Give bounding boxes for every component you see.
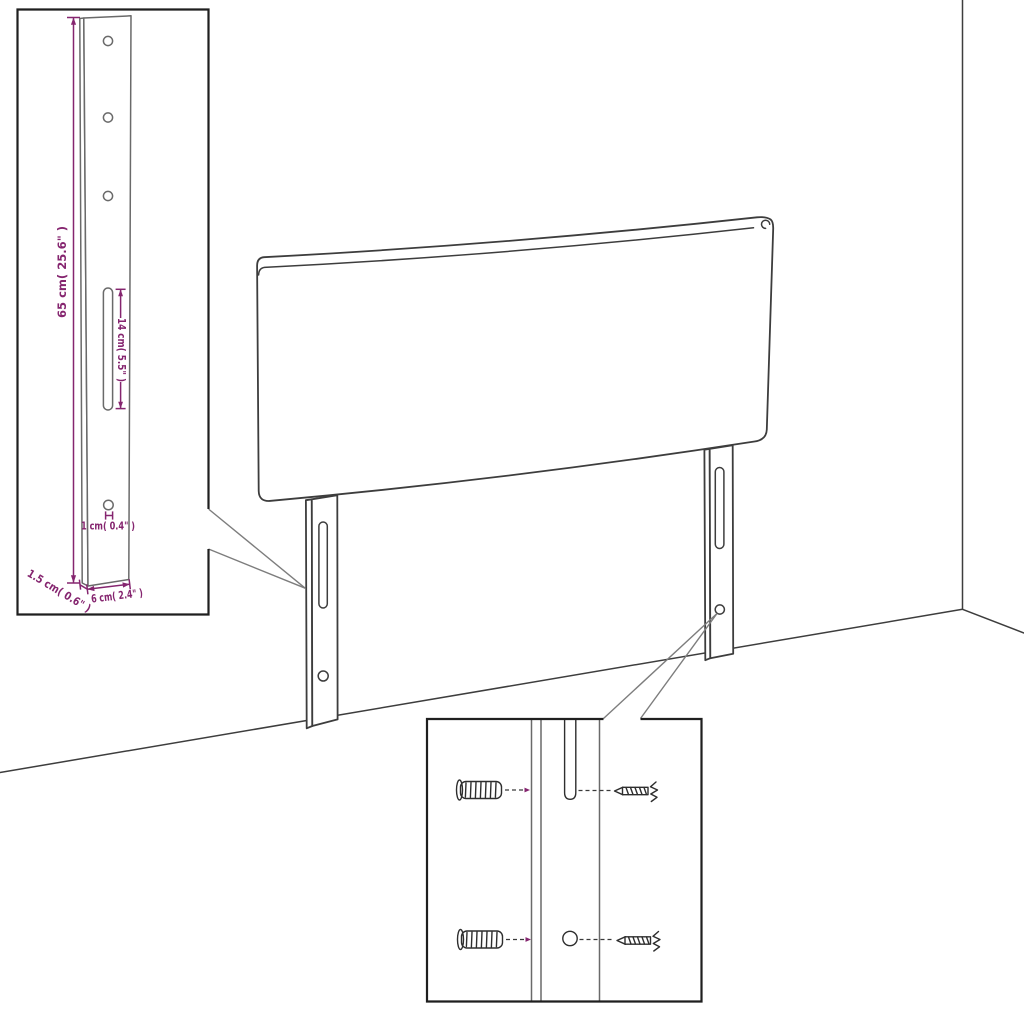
callout-line [604, 614, 718, 719]
mounting-detail-inset [427, 719, 702, 1002]
assembly-diagram-svg: 65 cm( 25.6" ) 14 cm( 5.5" ) 1 cm( 0.4" … [0, 0, 1024, 1024]
diagram-page: 65 cm( 25.6" ) 14 cm( 5.5" ) 1 cm( 0.4" … [0, 0, 1024, 1024]
floor-line-right [963, 609, 1024, 633]
left-leg-front-face [312, 495, 338, 726]
callout-line [641, 614, 718, 719]
callout-line [209, 509, 306, 588]
leg-detail-inset: 65 cm( 25.6" ) 14 cm( 5.5" ) 1 cm( 0.4" … [18, 10, 209, 616]
mounting-inset-callout [604, 614, 718, 719]
right-leg-front-face [710, 445, 734, 658]
dimension-label-leg-height: 65 cm( 25.6" ) [55, 226, 69, 318]
left-leg [306, 495, 338, 728]
headboard-panel [257, 217, 773, 501]
right-leg [704, 445, 733, 660]
callout-line [209, 549, 306, 588]
leg-inset-callout [209, 509, 306, 588]
dimension-label-slot-height: 14 cm( 5.5" ) [115, 318, 128, 382]
headboard [257, 217, 773, 501]
dimension-label-hole-diameter: 1 cm( 0.4" ) [81, 520, 135, 533]
